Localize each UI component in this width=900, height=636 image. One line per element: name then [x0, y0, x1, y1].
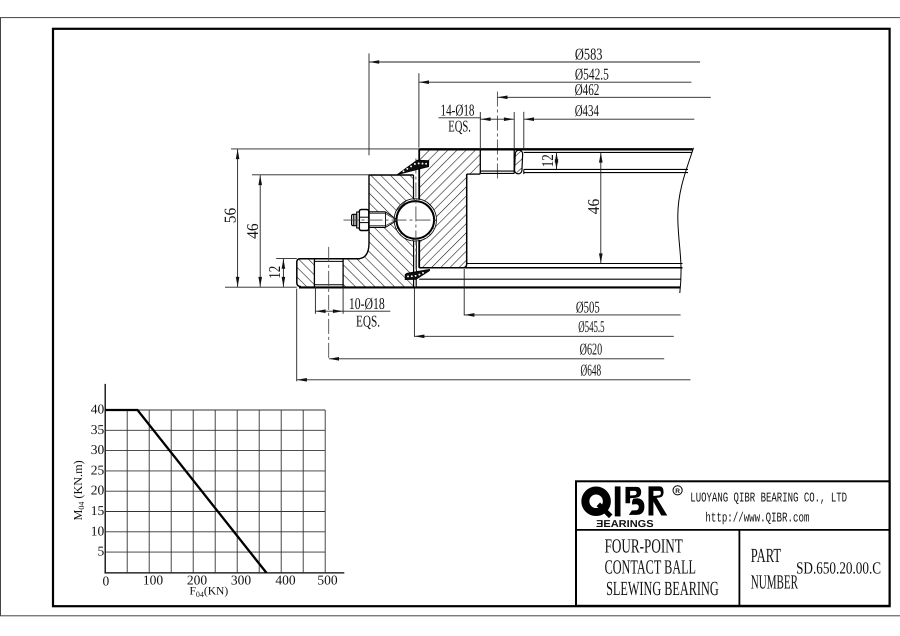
svg-text:46: 46	[243, 223, 262, 239]
svg-text:25: 25	[91, 462, 105, 477]
svg-text:10: 10	[91, 523, 105, 538]
svg-text:FOUR-POINT: FOUR-POINT	[605, 536, 683, 558]
svg-text:500: 500	[317, 573, 338, 588]
svg-text:0: 0	[103, 573, 110, 588]
svg-text:46: 46	[584, 199, 603, 215]
svg-text:30: 30	[91, 442, 105, 457]
svg-text:Ø462: Ø462	[575, 80, 600, 99]
svg-text:CONTACT BALL: CONTACT BALL	[605, 556, 696, 578]
svg-text:400: 400	[275, 573, 296, 588]
svg-text:Ø434: Ø434	[575, 101, 599, 120]
svg-text:SLEWING BEARING: SLEWING BEARING	[606, 578, 719, 600]
svg-text:Ø505: Ø505	[576, 297, 600, 316]
svg-text:Ø545.5: Ø545.5	[578, 317, 604, 336]
svg-text:R: R	[675, 488, 680, 495]
svg-text:100: 100	[143, 573, 164, 588]
svg-text:SD.650.20.00.C: SD.650.20.00.C	[796, 558, 881, 577]
svg-text:http://www.QIBR.com: http://www.QIBR.com	[705, 512, 809, 527]
svg-text:300: 300	[231, 573, 252, 588]
svg-text:EQS.: EQS.	[356, 312, 380, 331]
svg-text:PART: PART	[751, 545, 781, 567]
svg-text:Ø583: Ø583	[575, 44, 603, 63]
svg-text:35: 35	[91, 422, 105, 437]
svg-text:Ø620: Ø620	[580, 339, 603, 358]
svg-text:56: 56	[220, 208, 239, 224]
svg-text:12: 12	[538, 154, 557, 167]
svg-text:Ø648: Ø648	[581, 360, 602, 379]
svg-text:40: 40	[91, 402, 105, 417]
svg-text:15: 15	[91, 503, 105, 518]
svg-text:10-Ø18: 10-Ø18	[349, 294, 385, 313]
svg-text:5: 5	[97, 544, 104, 559]
svg-text:LUOYANG QIBR BEARING CO., LTD: LUOYANG QIBR BEARING CO., LTD	[690, 492, 847, 507]
svg-text:ƎEARINGS: ƎEARINGS	[596, 519, 654, 530]
svg-text:EQS.: EQS.	[448, 116, 471, 135]
svg-text:12: 12	[265, 266, 284, 279]
svg-text:20: 20	[91, 483, 105, 498]
svg-text:M04 (KN.m): M04 (KN.m)	[71, 460, 86, 520]
svg-text:F04(KN): F04(KN)	[190, 586, 229, 599]
svg-text:NUMBER: NUMBER	[751, 571, 799, 593]
